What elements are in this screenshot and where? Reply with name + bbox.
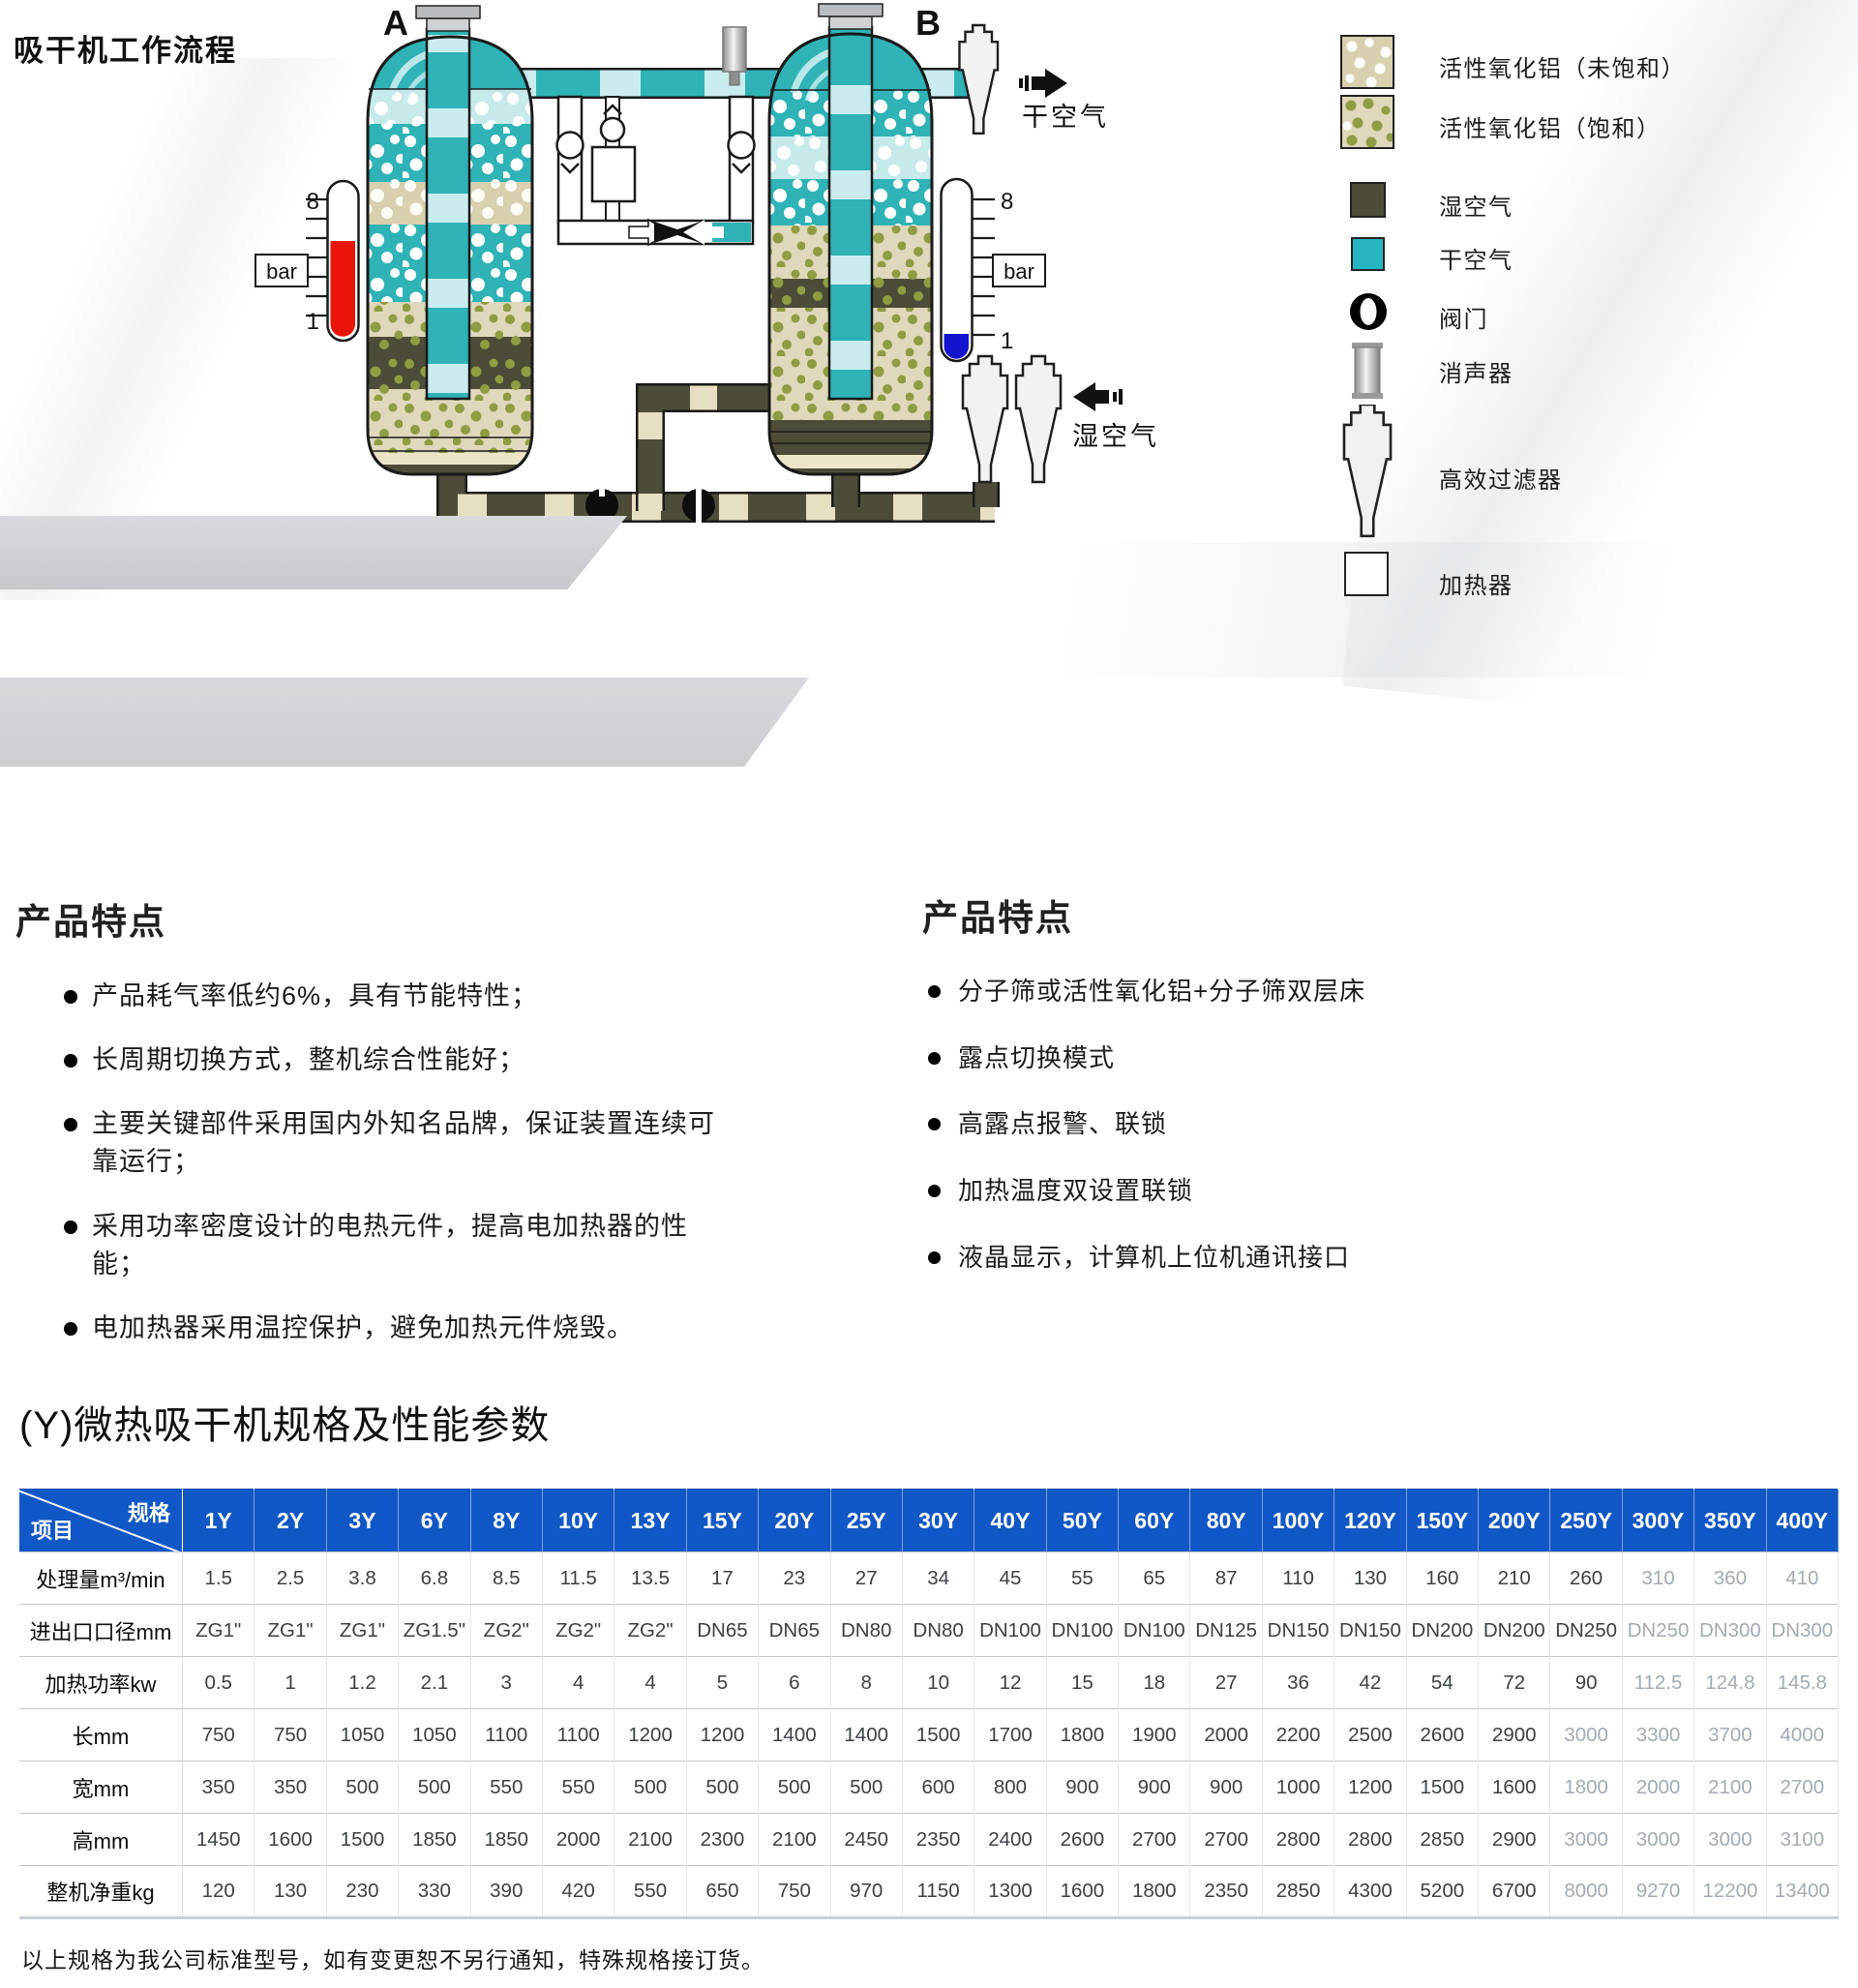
features-left-section: 产品特点 产品耗气率低约6%，具有节能特性；长周期切换方式，整机综合性能好；主要…	[15, 892, 736, 1373]
spec-cell: 900	[1046, 1762, 1118, 1814]
spec-cell: 6700	[1479, 1866, 1550, 1918]
spec-cell: 1100	[542, 1709, 614, 1762]
spec-cell: 900	[1119, 1762, 1190, 1814]
tower-a-flange	[416, 6, 480, 31]
spec-cell: 2850	[1262, 1866, 1334, 1918]
spec-cell: 2800	[1262, 1814, 1334, 1866]
spec-cell: 55	[1046, 1552, 1118, 1605]
spec-cell: 2100	[614, 1814, 686, 1866]
spec-cell: 5	[686, 1657, 758, 1709]
spec-cell: 650	[686, 1866, 758, 1918]
spec-cell: 2300	[686, 1814, 758, 1866]
spec-cell: 2700	[1190, 1814, 1262, 1866]
spec-cell: 230	[326, 1866, 398, 1918]
tower-a-pressure-gauge: 8 1 bar	[255, 181, 359, 341]
legend-label: 活性氧化铝（未饱和）	[1439, 49, 1686, 83]
spec-cell: 310	[1622, 1552, 1693, 1605]
spec-cell: 145.8	[1766, 1657, 1838, 1709]
spec-cell: 410	[1766, 1552, 1838, 1605]
spec-cell: DN100	[1119, 1605, 1190, 1657]
legend-label: 加热器	[1439, 566, 1513, 600]
spec-cell: 1500	[1406, 1762, 1478, 1814]
spec-cell: 500	[326, 1762, 398, 1814]
spec-cell: 8	[830, 1657, 902, 1709]
spec-table-wrapper: 规格项目1Y2Y3Y6Y8Y10Y13Y15Y20Y25Y30Y40Y50Y60…	[19, 1489, 1839, 1919]
spec-cell: ZG1"	[183, 1605, 255, 1657]
spec-cell: 13400	[1766, 1866, 1838, 1918]
spec-cell: DN80	[830, 1605, 902, 1657]
heater	[592, 147, 635, 201]
alumina-unsaturated-swatch	[1340, 35, 1394, 89]
spec-cell: 550	[614, 1866, 686, 1918]
wet-air-filter	[1016, 356, 1061, 482]
spec-cell: 160	[1406, 1552, 1478, 1605]
spec-cell: 2600	[1406, 1709, 1478, 1762]
tower-b-center-pipe	[829, 27, 872, 399]
features-list: 产品耗气率低约6%，具有节能特性；长周期切换方式，整机综合性能好；主要关键部件采…	[15, 978, 736, 1347]
spec-cell: 1300	[974, 1866, 1046, 1918]
spec-cell: 36	[1262, 1657, 1334, 1709]
spec-cell: 13.5	[614, 1552, 686, 1605]
spec-cell: 3000	[1622, 1814, 1693, 1866]
spec-cell: 4	[542, 1657, 614, 1709]
spec-cell: 72	[1479, 1657, 1550, 1709]
alumina-saturated-swatch	[1340, 95, 1394, 149]
spec-cell: 34	[902, 1552, 974, 1605]
spec-cell: 1100	[470, 1709, 542, 1762]
spec-cell: 360	[1694, 1552, 1766, 1605]
feature-bullet: 液晶显示，计算机上位机通讯接口	[922, 1240, 1580, 1277]
muffler-icon	[1350, 343, 1385, 399]
spec-cell: 1700	[974, 1709, 1046, 1762]
feature-bullet: 高露点报警、联锁	[922, 1106, 1580, 1143]
spec-col-header: 300Y	[1622, 1490, 1693, 1552]
spec-cell: 65	[1119, 1552, 1190, 1605]
spec-cell: 120	[183, 1866, 255, 1918]
spec-cell: 17	[686, 1552, 758, 1605]
spec-cell: 12	[974, 1657, 1046, 1709]
spec-corner-cell: 规格项目	[19, 1490, 183, 1552]
spec-cell: DN80	[902, 1605, 974, 1657]
tower-b	[767, 4, 934, 476]
spec-cell: 2.5	[255, 1552, 326, 1605]
spec-cell: 420	[542, 1866, 614, 1918]
feature-bullet: 加热温度双设置联锁	[922, 1173, 1580, 1210]
spec-cell: 27	[1190, 1657, 1262, 1709]
spec-cell: DN250	[1622, 1605, 1693, 1657]
spec-col-header: 400Y	[1766, 1490, 1838, 1552]
spec-cell: 54	[1406, 1657, 1478, 1709]
spec-cell: 1800	[1550, 1762, 1622, 1814]
spec-cell: 390	[470, 1866, 542, 1918]
spec-cell: 2700	[1766, 1762, 1838, 1814]
spec-cell: 1850	[470, 1814, 542, 1866]
features-right-section: 产品特点 分子筛或活性氧化铝+分子筛双层床露点切换模式高露点报警、联锁加热温度双…	[922, 889, 1580, 1306]
spec-cell: ZG2"	[470, 1605, 542, 1657]
spec-cell: 3.8	[326, 1552, 398, 1605]
spec-col-header: 8Y	[470, 1490, 542, 1552]
spec-cell: 2000	[1622, 1762, 1693, 1814]
spec-cell: 3100	[1766, 1814, 1838, 1866]
spec-cell: 1600	[1046, 1866, 1118, 1918]
feature-bullet: 电加热器采用温控保护，避免加热元件烧毁。	[15, 1310, 736, 1347]
spec-col-header: 200Y	[1479, 1490, 1550, 1552]
spec-col-header: 2Y	[255, 1490, 326, 1552]
spec-col-header: 25Y	[830, 1490, 902, 1552]
spec-col-header: 100Y	[1262, 1490, 1334, 1552]
spec-cell: DN300	[1694, 1605, 1766, 1657]
spec-cell: 1.2	[326, 1657, 398, 1709]
spec-col-header: 80Y	[1190, 1490, 1262, 1552]
spec-cell: 1200	[614, 1709, 686, 1762]
feature-bullet: 露点切换模式	[922, 1040, 1580, 1077]
spec-col-header: 50Y	[1046, 1490, 1118, 1552]
diagram-legend: 活性氧化铝（未饱和） 活性氧化铝（饱和） 湿空气 干空气 阀门 消声器 高效过滤…	[1338, 19, 1783, 639]
spec-cell: 1200	[1334, 1762, 1406, 1814]
spec-cell: 1	[255, 1657, 326, 1709]
spec-cell: 800	[974, 1762, 1046, 1814]
spec-col-header: 350Y	[1694, 1490, 1766, 1552]
spec-cell: 2850	[1406, 1814, 1478, 1866]
spec-cell: 42	[1334, 1657, 1406, 1709]
spec-cell: 2000	[542, 1814, 614, 1866]
spec-cell: 2200	[1262, 1709, 1334, 1762]
spec-cell: 500	[759, 1762, 830, 1814]
spec-cell: DN150	[1262, 1605, 1334, 1657]
spec-row-label: 高mm	[19, 1814, 183, 1866]
spec-cell: 124.8	[1694, 1657, 1766, 1709]
spec-cell: 1800	[1046, 1709, 1118, 1762]
spec-cell: 3000	[1694, 1814, 1766, 1866]
spec-cell: 1400	[759, 1709, 830, 1762]
spec-cell: 1850	[399, 1814, 470, 1866]
spec-col-header: 6Y	[399, 1490, 470, 1552]
spec-cell: 2500	[1334, 1709, 1406, 1762]
spec-cell: 6	[759, 1657, 830, 1709]
spec-cell: 500	[614, 1762, 686, 1814]
spec-cell: 500	[399, 1762, 470, 1814]
spec-cell: 750	[759, 1866, 830, 1918]
legend-label: 干空气	[1439, 241, 1513, 275]
spec-cell: 1.5	[183, 1552, 255, 1605]
spec-cell: 87	[1190, 1552, 1262, 1605]
wet-air-label: 湿空气	[1072, 422, 1159, 451]
spec-cell: 130	[1334, 1552, 1406, 1605]
spec-cell: DN125	[1190, 1605, 1262, 1657]
spec-cell: 1600	[255, 1814, 326, 1866]
spec-cell: 3	[470, 1657, 542, 1709]
wet-air-arrow	[1073, 382, 1123, 411]
spec-cell: ZG1"	[255, 1605, 326, 1657]
spec-cell: 11.5	[542, 1552, 614, 1605]
spec-cell: 2400	[974, 1814, 1046, 1866]
spec-cell: 1900	[1119, 1709, 1190, 1762]
spec-cell: 23	[759, 1552, 830, 1605]
features-list: 分子筛或活性氧化铝+分子筛双层床露点切换模式高露点报警、联锁加热温度双设置联锁液…	[922, 974, 1580, 1276]
spec-cell: 750	[183, 1709, 255, 1762]
spec-cell: 550	[542, 1762, 614, 1814]
features-heading: 产品特点	[15, 892, 736, 945]
spec-cell: 260	[1550, 1552, 1622, 1605]
spec-cell: 330	[399, 1866, 470, 1918]
spec-cell: 600	[902, 1762, 974, 1814]
spec-table: 规格项目1Y2Y3Y6Y8Y10Y13Y15Y20Y25Y30Y40Y50Y60…	[19, 1489, 1839, 1919]
spec-cell: 1600	[1479, 1762, 1550, 1814]
spec-cell: 1050	[399, 1709, 470, 1762]
spec-cell: 1200	[686, 1709, 758, 1762]
spec-cell: 45	[974, 1552, 1046, 1605]
gray-ribbon	[0, 516, 627, 589]
spec-col-header: 3Y	[326, 1490, 398, 1552]
spec-cell: 3000	[1550, 1709, 1622, 1762]
legend-label: 消声器	[1439, 354, 1513, 388]
spec-cell: 1150	[902, 1866, 974, 1918]
spec-cell: 550	[470, 1762, 542, 1814]
spec-cell: DN250	[1550, 1605, 1622, 1657]
spec-cell: 1400	[830, 1709, 902, 1762]
spec-cell: 2.1	[399, 1657, 470, 1709]
spec-cell: ZG2"	[614, 1605, 686, 1657]
spec-cell: DN300	[1766, 1605, 1838, 1657]
spec-cell: 12200	[1694, 1866, 1766, 1918]
spec-cell: 2450	[830, 1814, 902, 1866]
spec-cell: DN200	[1479, 1605, 1550, 1657]
spec-cell: 3000	[1550, 1814, 1622, 1866]
filter-icon	[1339, 405, 1395, 540]
feature-bullet: 采用功率密度设计的电热元件，提高电加热器的性能；	[15, 1208, 736, 1283]
spec-cell: 1500	[326, 1814, 398, 1866]
spec-cell: 210	[1479, 1552, 1550, 1605]
spec-cell: 2600	[1046, 1814, 1118, 1866]
spec-cell: ZG1"	[326, 1605, 398, 1657]
spec-cell: 6.8	[399, 1552, 470, 1605]
spec-cell: 970	[830, 1866, 902, 1918]
valve-icon	[1348, 288, 1389, 335]
spec-row-label: 进出口口径mm	[19, 1605, 183, 1657]
spec-cell: 15	[1046, 1657, 1118, 1709]
legend-label: 阀门	[1439, 300, 1488, 334]
spec-row-label: 处理量m³/min	[19, 1552, 183, 1605]
spec-col-header: 60Y	[1119, 1490, 1190, 1552]
spec-cell: 4300	[1334, 1866, 1406, 1918]
spec-cell: 3700	[1694, 1709, 1766, 1762]
feature-bullet: 长周期切换方式，整机综合性能好；	[15, 1041, 736, 1079]
spec-cell: 130	[255, 1866, 326, 1918]
tower-a-label: A	[383, 3, 408, 43]
spec-cell: 4	[614, 1657, 686, 1709]
dry-air-label: 干空气	[1022, 103, 1109, 132]
spec-row-label: 长mm	[19, 1709, 183, 1762]
spec-cell: DN150	[1334, 1605, 1406, 1657]
features-heading: 产品特点	[922, 889, 1580, 941]
regeneration-loop	[557, 27, 755, 245]
spec-cell: 112.5	[1622, 1657, 1693, 1709]
spec-cell: 110	[1262, 1552, 1334, 1605]
gauge-min-label: 1	[1001, 328, 1013, 354]
spec-cell: 500	[830, 1762, 902, 1814]
spec-col-header: 10Y	[542, 1490, 614, 1552]
spec-col-header: 40Y	[974, 1490, 1046, 1552]
gray-ribbon	[0, 678, 809, 767]
spec-cell: 1000	[1262, 1762, 1334, 1814]
pressure-unit-label: bar	[266, 259, 297, 284]
spec-cell: 2900	[1479, 1709, 1550, 1762]
spec-cell: DN65	[686, 1605, 758, 1657]
spec-cell: DN100	[974, 1605, 1046, 1657]
tower-b-label: B	[915, 3, 941, 43]
spec-cell: 8.5	[470, 1552, 542, 1605]
tower-a-center-pipe	[427, 29, 469, 399]
legend-label: 湿空气	[1439, 188, 1513, 222]
spec-cell: DN65	[759, 1605, 830, 1657]
spec-cell: DN100	[1046, 1605, 1118, 1657]
spec-cell: ZG2"	[542, 1605, 614, 1657]
spec-cell: 5200	[1406, 1866, 1478, 1918]
spec-cell: 0.5	[183, 1657, 255, 1709]
spec-cell: 350	[255, 1762, 326, 1814]
tower-b-flange	[819, 4, 883, 29]
spec-cell: 4000	[1766, 1709, 1838, 1762]
pressure-unit-label: bar	[1004, 259, 1034, 284]
spec-col-header: 30Y	[902, 1490, 974, 1552]
gauge-max-label: 8	[307, 189, 319, 215]
gauge-max-label: 8	[1001, 189, 1013, 215]
wet-air-swatch	[1350, 182, 1386, 218]
spec-cell: 1050	[326, 1709, 398, 1762]
spec-cell: 18	[1119, 1657, 1190, 1709]
spec-cell: 2000	[1190, 1709, 1262, 1762]
spec-cell: 8000	[1550, 1866, 1622, 1918]
dry-air-arrow	[1019, 69, 1067, 98]
spec-cell: 27	[830, 1552, 902, 1605]
spec-cell: 2350	[902, 1814, 974, 1866]
tower-b-pressure-gauge: 8 1 bar	[942, 179, 1046, 361]
spec-cell: 10	[902, 1657, 974, 1709]
spec-col-header: 150Y	[1406, 1490, 1478, 1552]
spec-cell: 750	[255, 1709, 326, 1762]
spec-col-header: 13Y	[614, 1490, 686, 1552]
spec-cell: 1500	[902, 1709, 974, 1762]
legend-label: 高效过滤器	[1439, 461, 1563, 495]
spec-cell: 2100	[759, 1814, 830, 1866]
spec-cell: 2900	[1479, 1814, 1550, 1866]
spec-cell: DN200	[1406, 1605, 1478, 1657]
feature-bullet: 产品耗气率低约6%，具有节能特性；	[15, 978, 736, 1015]
spec-cell: 2800	[1334, 1814, 1406, 1866]
dry-air-swatch	[1351, 237, 1385, 271]
spec-col-header: 120Y	[1334, 1490, 1406, 1552]
heater-icon	[1344, 552, 1389, 596]
spec-cell: 1450	[183, 1814, 255, 1866]
legend-label: 活性氧化铝（饱和）	[1439, 109, 1662, 143]
spec-cell: 90	[1550, 1657, 1622, 1709]
spec-col-header: 15Y	[686, 1490, 758, 1552]
spec-cell: 350	[183, 1762, 255, 1814]
spec-cell: 9270	[1622, 1866, 1693, 1918]
spec-section-title: (Y)微热吸干机规格及性能参数	[19, 1394, 550, 1450]
spec-cell: 2100	[1694, 1762, 1766, 1814]
gauge-min-label: 1	[307, 309, 319, 335]
spec-cell: 1800	[1119, 1866, 1190, 1918]
spec-cell: 3300	[1622, 1709, 1693, 1762]
spec-row-label: 加热功率kw	[19, 1657, 183, 1709]
spec-col-header: 1Y	[183, 1490, 255, 1552]
spec-cell: 900	[1190, 1762, 1262, 1814]
feature-bullet: 分子筛或活性氧化铝+分子筛双层床	[922, 974, 1580, 1010]
spec-row-label: 整机净重kg	[19, 1866, 183, 1918]
spec-cell: 2700	[1119, 1814, 1190, 1866]
spec-col-header: 250Y	[1550, 1490, 1622, 1552]
dry-air-filter	[959, 25, 998, 134]
wet-air-filter	[963, 356, 1007, 482]
spec-cell: ZG1.5"	[399, 1605, 470, 1657]
catalog-page: 吸干机工作流程	[0, 0, 1858, 1988]
feature-bullet: 主要关键部件采用国内外知名品牌，保证装置连续可靠运行；	[15, 1105, 736, 1181]
spec-cell: 500	[686, 1762, 758, 1814]
footer-note: 以上规格为我公司标准型号，如有变更恕不另行通知，特殊规格接订货。	[21, 1942, 764, 1974]
spec-cell: 2350	[1190, 1866, 1262, 1918]
tower-a	[366, 6, 534, 474]
spec-row-label: 宽mm	[19, 1762, 183, 1814]
spec-col-header: 20Y	[759, 1490, 830, 1552]
